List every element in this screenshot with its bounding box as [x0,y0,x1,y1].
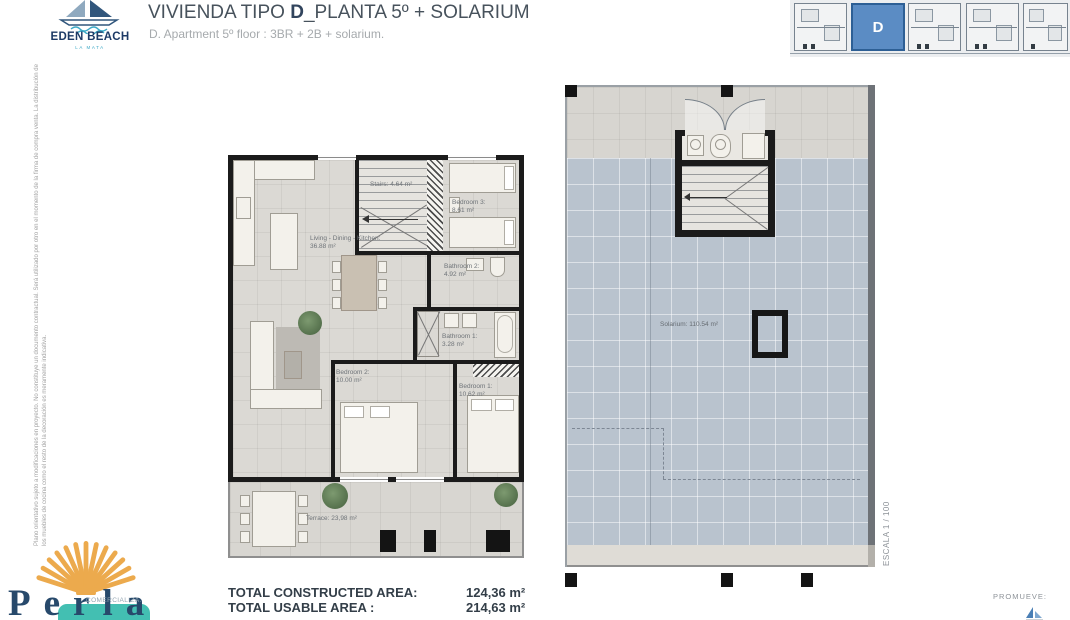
wall [765,130,775,136]
glass-door [396,477,444,482]
keyplan-baseline [790,53,1070,54]
keyplan-unit-d-label: D [873,19,884,36]
chair [332,279,341,291]
cabinet [742,133,765,159]
pillow [344,406,364,418]
room-label-bedroom1: Bedroom 1: 10.62 m² [459,383,493,398]
wall [519,155,524,477]
parapet-wall [868,85,875,545]
terrace-table [252,491,296,547]
solarium-plan: Solarium: 110.54 m² [565,85,875,590]
deck-border-band [567,545,868,565]
column [424,530,436,552]
column [801,573,813,587]
keyplan-wall [1026,27,1066,28]
wall [331,360,335,477]
plant-icon [298,311,322,335]
chair [298,495,308,507]
terrace-edge [228,556,524,558]
total-constructed-label: TOTAL CONSTRUCTED AREA: [228,585,466,600]
room-label-bedroom2: Bedroom 2: 10.00 m² [336,369,370,384]
kitchen-sink [236,197,251,219]
room-area: 10.62 m² [459,391,493,399]
logo-subname: LA MATA [35,45,145,50]
wall [453,364,457,477]
header-logo: EDEN BEACH LA MATA [35,0,145,55]
promueve-logo-icon [1026,607,1044,620]
keyplan-wall [969,27,1017,28]
floorplan-apartment: Stairs: 4.64 m² Bedroom 3: 8.61 m² Livin… [228,155,524,567]
chair [298,531,308,543]
room-area: 10.00 m² [336,377,370,385]
column [721,573,733,587]
chair [332,297,341,309]
dashed-roofline [572,428,664,429]
totals-block: TOTAL CONSTRUCTED AREA:124,36 m² TOTAL U… [228,584,525,614]
page-subtitle: D. Apartment 5º floor : 3BR + 2B + solar… [149,27,384,41]
toilet-bowl [715,139,726,150]
wardrobe-hatch [427,160,443,251]
keyplan-mark [975,44,979,49]
dining-table [341,255,377,311]
column [721,85,733,97]
room-name: Bedroom 1: [459,383,493,391]
plant-icon [494,483,518,507]
chair [378,297,387,309]
washer [444,313,459,328]
room-area: 36.88 m² [310,243,380,251]
keyplan-unit [908,3,961,51]
keyplan-mark [983,44,987,49]
keyplan-unit [794,3,847,51]
logo-name: EDEN BEACH [35,31,145,43]
stair-arrow-head [362,215,369,223]
room-area: 3.28 m² [442,341,477,349]
total-constructed-row: TOTAL CONSTRUCTED AREA:124,36 m² [228,584,525,599]
title-prefix: VIVIENDA TIPO [148,2,290,23]
pillow [504,220,514,245]
total-usable-value: 214,63 m² [466,600,525,615]
keyplan-room [801,9,819,22]
keyplan-room [915,9,933,22]
chair [378,279,387,291]
pillow [370,406,390,418]
room-label-bathroom2: Bathroom 2: 4.92 m² [444,263,479,278]
room-label-stairs: Stairs: 4.64 m² [370,181,412,189]
keyplan-mark [1031,44,1035,49]
chair [378,261,387,273]
room-label-bedroom3: Bedroom 3: 8.61 m² [452,199,486,214]
plan-edge [565,85,567,567]
chair [240,513,250,525]
plan-edge [565,565,875,567]
keyplan-wall [911,27,959,28]
wall [768,130,775,237]
wall [675,230,775,237]
keyplan-wall [797,27,845,28]
pillow [471,399,492,411]
keyplan-mark [925,44,929,49]
glass-door [340,477,388,482]
stair-arrow [689,197,727,198]
bathtub-basin [497,315,513,353]
room-area: 4.92 m² [444,271,479,279]
keyplan-mark [917,44,921,49]
wall [355,251,519,255]
dashed-roofline [663,428,664,479]
sofa [250,389,322,409]
stair-arrow-head [684,193,690,201]
plant-icon [322,483,348,509]
room-label-terrace: Terrace: 23,98 m² [306,515,357,523]
column [565,85,577,97]
eden-boat-icon [49,0,129,34]
room-name: Bedroom 2: [336,369,370,377]
pillow [504,166,514,190]
total-constructed-value: 124,36 m² [466,585,525,600]
promueve-label: PROMUEVE: [993,592,1047,601]
page-title: VIVIENDA TIPO D_PLANTA 5º + SOLARIUM [148,2,530,24]
disclaimer-vertical: Plano orientativo sujeto a modificacione… [34,58,49,546]
room-label-living: Living - Dining - Kitchen: 36.88 m² [310,235,380,250]
chair [240,495,250,507]
keyplan-mark [811,44,815,49]
kitchen-island [270,213,298,270]
wall [675,130,685,136]
room-name: Bedroom 3: [452,199,486,207]
column [380,530,396,552]
window [448,155,496,160]
scale-label-vertical: ESCALA 1 / 100 [882,446,891,566]
dashed-roofline [663,479,860,480]
room-name: Bathroom 2: [444,263,479,271]
stair-arrow [368,219,418,220]
room-area: 8.61 m² [452,207,486,215]
toilet [490,257,505,277]
terrace-edge [522,482,524,558]
column [486,530,510,552]
keyplan-unit [966,3,1019,51]
room-name: Bathroom 1: [442,333,477,341]
deck-joint [650,158,651,545]
comercializa-label: COMERCIALIZA: [86,597,142,604]
room-label-bathroom1: Bathroom 1: 3.28 m² [442,333,477,348]
skylight [752,310,788,358]
plan-sheet: EDEN BEACH LA MATA VIVIENDA TIPO D_PLANT… [0,0,1070,620]
keyplan-unit [1023,3,1068,51]
room-name: Living - Dining - Kitchen: [310,235,380,243]
column [565,573,577,587]
wardrobe-hatch [473,364,519,377]
keyplan-room [1029,9,1044,22]
coffee-table [284,351,302,379]
keyplan-unit-d: D [851,3,905,51]
chair [240,531,250,543]
terrace-edge [228,482,230,558]
title-bold-letter: D [290,2,304,23]
keyplan-mark [803,44,807,49]
washer [462,313,477,328]
keyplan-room [973,9,991,22]
basin-bowl [690,139,701,150]
chair [332,261,341,273]
wall [675,130,682,237]
window [318,155,356,160]
total-usable-label: TOTAL USABLE AREA : [228,600,466,615]
title-suffix: _PLANTA 5º + SOLARIUM [304,2,530,23]
pillow [495,399,514,411]
wall [427,255,431,311]
total-usable-row: TOTAL USABLE AREA :214,63 m² [228,599,525,614]
room-label-solarium: Solarium: 110.54 m² [660,321,718,329]
parapet-wall [868,545,875,567]
building-keyplan: D [790,0,1070,57]
